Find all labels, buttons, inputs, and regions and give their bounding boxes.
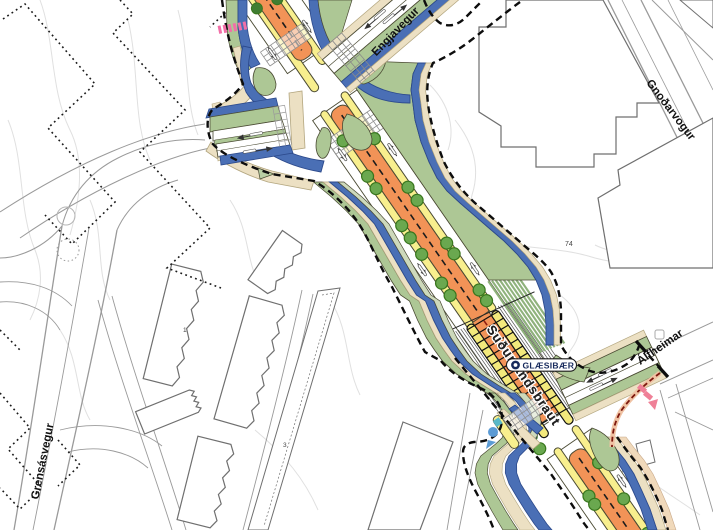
svg-text:74: 74 (565, 241, 573, 248)
svg-text:3: 3 (283, 442, 287, 449)
svg-text:1: 1 (183, 327, 187, 334)
svg-text:GLÆSIBÆR: GLÆSIBÆR (523, 361, 575, 371)
